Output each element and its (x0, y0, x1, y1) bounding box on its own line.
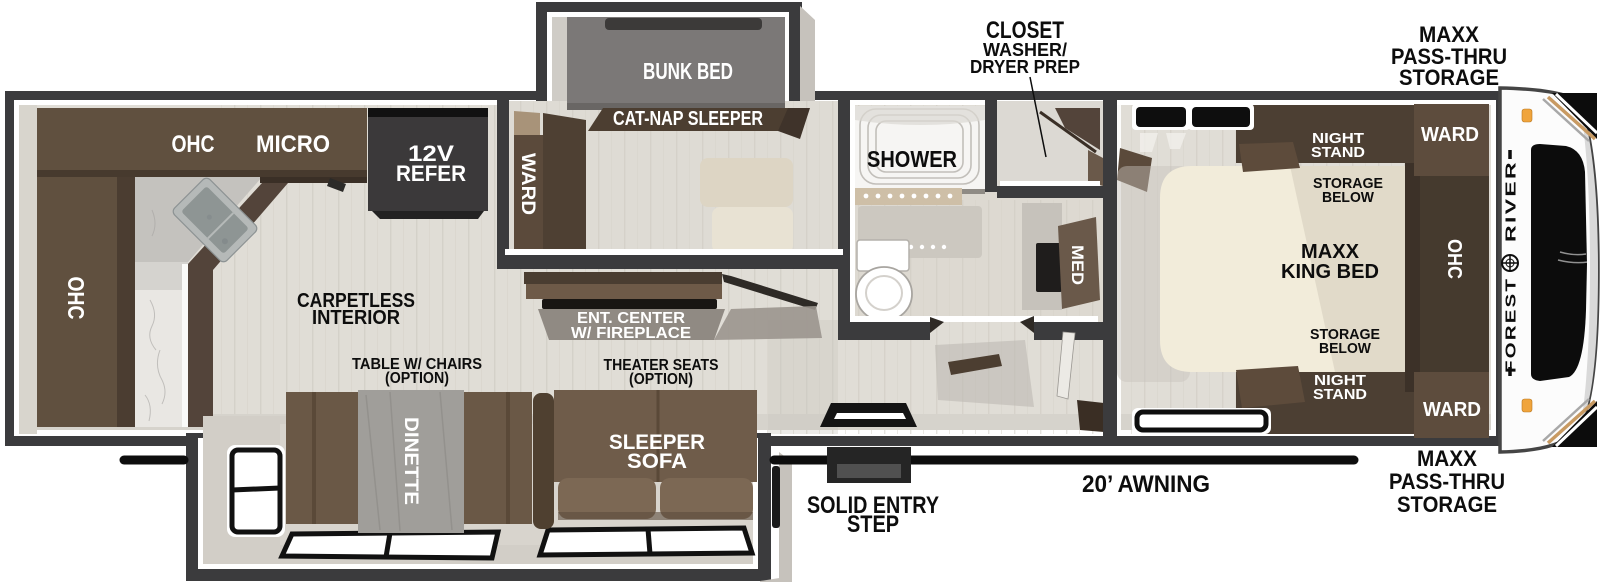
svg-text:OHC: OHC (172, 131, 215, 158)
svg-text:WARD: WARD (517, 153, 538, 215)
svg-text:MAXX: MAXX (1417, 446, 1477, 471)
svg-text:MAXX: MAXX (1301, 241, 1360, 263)
svg-text:RIVER: RIVER (1504, 160, 1520, 242)
svg-text:BUNK BED: BUNK BED (643, 58, 733, 84)
svg-text:WARD: WARD (1421, 124, 1479, 146)
svg-text:MICRO: MICRO (256, 131, 330, 158)
svg-text:STEP: STEP (847, 511, 899, 538)
svg-text:DINETTE: DINETTE (400, 417, 421, 505)
svg-text:STAND: STAND (1311, 144, 1365, 161)
svg-text:STAND: STAND (1313, 386, 1367, 403)
svg-text:WARD: WARD (1423, 399, 1481, 421)
svg-text:PASS-THRU: PASS-THRU (1389, 469, 1505, 494)
svg-text:KING BED: KING BED (1281, 261, 1379, 283)
svg-text:CAT-NAP SLEEPER: CAT-NAP SLEEPER (613, 108, 763, 130)
svg-text:OHC: OHC (1443, 239, 1465, 279)
svg-text:REFER: REFER (396, 161, 466, 186)
svg-text:BELOW: BELOW (1319, 340, 1372, 357)
svg-text:STORAGE: STORAGE (1399, 65, 1499, 90)
svg-text:OHC: OHC (63, 277, 89, 320)
svg-text:SHOWER: SHOWER (867, 146, 957, 172)
svg-text:BELOW: BELOW (1322, 189, 1375, 206)
svg-text:SOFA: SOFA (627, 450, 687, 473)
svg-text:DRYER PREP: DRYER PREP (970, 57, 1080, 77)
svg-text:20’ AWNING: 20’ AWNING (1082, 471, 1210, 498)
svg-text:(OPTION): (OPTION) (385, 370, 449, 387)
svg-text:STORAGE: STORAGE (1397, 492, 1497, 517)
svg-text:W/ FIREPLACE: W/ FIREPLACE (571, 325, 691, 342)
svg-text:FOREST: FOREST (1504, 277, 1520, 373)
svg-text:INTERIOR: INTERIOR (312, 307, 401, 329)
svg-text:(OPTION): (OPTION) (629, 371, 693, 388)
svg-text:MED: MED (1068, 245, 1087, 285)
